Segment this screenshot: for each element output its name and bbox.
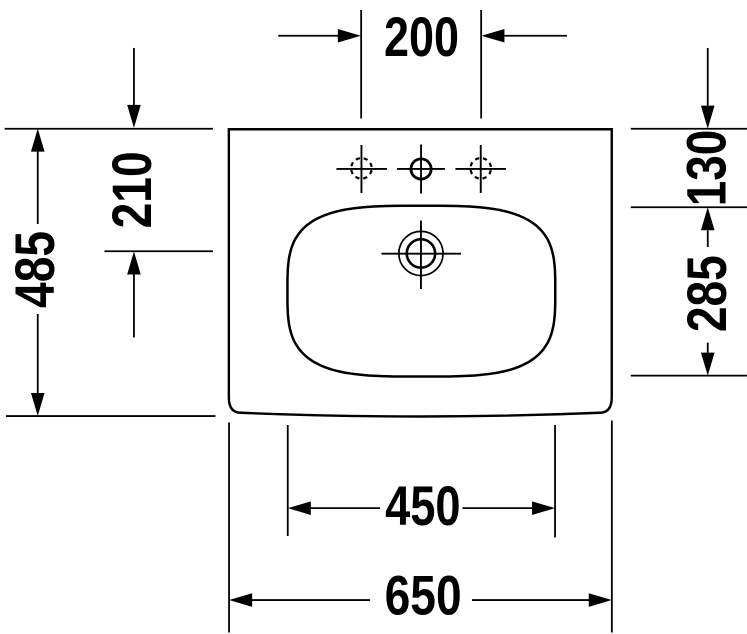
svg-text:130: 130 [675, 130, 738, 207]
svg-text:210: 210 [100, 151, 163, 228]
svg-text:485: 485 [3, 231, 66, 308]
svg-text:650: 650 [385, 564, 462, 627]
svg-text:285: 285 [675, 255, 738, 332]
svg-text:450: 450 [385, 474, 461, 537]
svg-text:200: 200 [384, 5, 459, 68]
